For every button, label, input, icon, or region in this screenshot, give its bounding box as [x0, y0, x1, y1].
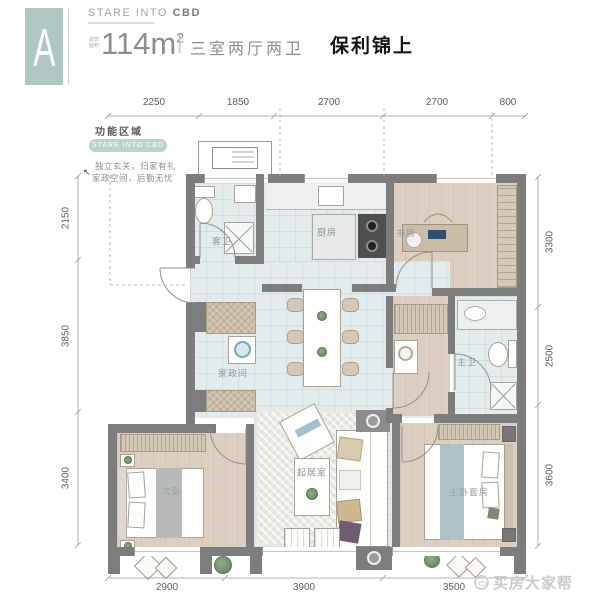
project-name: 保利锦上 [330, 31, 414, 58]
masterbath-shower [490, 382, 517, 410]
master-pillow-accent [487, 507, 499, 519]
dim-right-3: 3600 [545, 464, 556, 486]
wall-bedroom2-top [108, 424, 216, 433]
master-headboard [504, 444, 513, 540]
brand-slogan-bold: CBD [173, 7, 201, 19]
label-master-bath: 主卫 [457, 356, 477, 369]
wall-foyer-stub-1 [186, 302, 206, 332]
ac-unit-icon [212, 147, 258, 169]
dining-plant-1 [317, 311, 327, 321]
window-master-bedroom [392, 547, 502, 556]
sofa-back-line [370, 431, 371, 547]
kitchen-sink [318, 186, 344, 206]
window-bedroom2 [134, 547, 202, 556]
bedroom2-pillow-2 [127, 502, 145, 529]
wall-masterbath-left-2 [448, 392, 455, 416]
wall-foyer-stub-2 [186, 390, 206, 412]
watermark-logo-icon [474, 575, 489, 590]
dressing-wardrobe [394, 304, 448, 334]
dim-top-1: 2250 [143, 97, 165, 108]
wall-stub-b1 [200, 556, 212, 574]
bedroom2-wardrobe [120, 434, 206, 452]
dressing-mirror [398, 346, 413, 361]
info-panel-line2: 家政空间，后勤无忧 [92, 172, 173, 184]
sofa-pillow-purple [336, 520, 361, 544]
wall-guestbath-bottom-1 [186, 256, 200, 264]
watermark-text: 买房大家帮 [493, 572, 573, 593]
dining-chair-4 [342, 298, 359, 312]
guest-toilet-tank [193, 186, 215, 198]
header-divider [68, 8, 69, 84]
washing-machine-drum [234, 341, 251, 358]
guest-toilet-bowl [195, 198, 213, 224]
area-number: 114m [101, 26, 176, 61]
unit-type-badge: A [25, 8, 63, 85]
window-top-study [436, 174, 498, 183]
dining-table [303, 289, 341, 387]
study-bookshelf [497, 185, 517, 288]
wall-master-top-2 [434, 414, 526, 423]
master-wardrobe [438, 424, 500, 440]
wall-kitchen-bottom-2 [352, 284, 396, 292]
wall-bottom-4 [500, 547, 526, 556]
bedroom2-bed-runner [156, 468, 182, 538]
wall-left-bedroom [108, 424, 117, 556]
decor-plant-left [214, 556, 232, 574]
label-study: 书房 [396, 227, 416, 240]
area-value: 114m2 [101, 26, 184, 62]
bedroom2-pillow-1 [127, 471, 146, 498]
stove-burner-2 [366, 240, 378, 252]
dim-top-4: 2700 [426, 97, 448, 108]
dim-top-3: 2700 [318, 97, 340, 108]
side-table-upper-tray [366, 414, 380, 428]
layout-description: 三室两厅两卫 [190, 35, 304, 59]
wall-kitchen-bottom-1 [262, 284, 302, 292]
master-nightstand-1 [502, 426, 516, 442]
label-living: 起居室 [297, 466, 327, 479]
dim-left-3: 3400 [61, 467, 72, 489]
info-panel-title: 功能区域 [95, 123, 143, 138]
brand-subline [88, 22, 154, 24]
wall-masterbath-left-1 [448, 296, 455, 354]
label-second-bedroom: 次卧 [162, 485, 182, 498]
dim-bottom-2: 3900 [293, 582, 315, 593]
label-master-bedroom: 主卧套房 [449, 486, 489, 499]
sofa-pillow-white [339, 470, 361, 490]
masterbath-basin [464, 306, 486, 321]
master-pillow-1 [481, 451, 500, 478]
wall-left-upper [186, 174, 195, 268]
unit-type-letter: A [33, 15, 55, 77]
foyer-cabinet-upper [206, 302, 256, 334]
wall-bed2-living [246, 424, 254, 547]
info-panel-line1: 独立玄关，归家有礼 [95, 160, 176, 172]
coffee-table-plant [306, 488, 318, 500]
wall-master-entry-upper [386, 296, 393, 368]
label-utility: 家政间 [218, 367, 248, 380]
dim-top-2: 1850 [227, 97, 249, 108]
wall-guestbath-right [256, 174, 264, 258]
study-monitor [428, 230, 446, 239]
dining-chair-1 [287, 298, 304, 312]
area-prefix: 建筑面积 [89, 37, 100, 49]
window-top-kitchen [304, 174, 350, 183]
dining-plant-2 [317, 347, 327, 357]
stove-burner-1 [366, 220, 378, 232]
cursor-arrow-icon: ↖ [83, 167, 91, 178]
master-nightstand-2 [502, 528, 516, 542]
dim-bottom-1: 2900 [156, 582, 178, 593]
wall-study-bottom [432, 288, 526, 296]
dining-chair-3 [287, 362, 304, 376]
guest-sink [234, 185, 256, 203]
wall-bottom-2 [200, 547, 262, 556]
wall-stub-bl [108, 556, 120, 574]
decor-bowl-on-stub [367, 551, 381, 565]
label-kitchen: 厨房 [317, 226, 337, 239]
dining-chair-5 [342, 330, 359, 344]
wall-guestbath-bottom-2 [235, 256, 264, 264]
wall-stub-b2 [250, 556, 262, 574]
decor-diamond-1b [155, 557, 178, 580]
dining-chair-2 [287, 330, 304, 344]
masterbath-toilet-tank [508, 340, 517, 368]
window-living [262, 547, 358, 556]
wall-top-2 [268, 174, 304, 183]
header-separator: | [177, 32, 182, 55]
label-guest-bath: 客卫 [212, 235, 232, 248]
wall-living-master [392, 423, 400, 547]
dim-right-1: 3300 [545, 231, 556, 253]
info-panel-pill: STARE INTO CBD [89, 139, 167, 152]
dim-left-1: 2150 [61, 207, 72, 229]
bedroom2-plant-1 [124, 456, 132, 464]
brand-slogan: STARE INTO CBD [88, 7, 201, 19]
dim-top-5: 800 [500, 97, 517, 108]
bedroom2-headboard [118, 468, 127, 538]
dining-chair-6 [342, 362, 359, 376]
sofa-pillow-tan [337, 436, 364, 461]
watermark: 买房大家帮 [474, 572, 573, 593]
masterbath-toilet-bowl [488, 342, 508, 367]
foyer-cabinet-lower [206, 390, 256, 412]
wall-master-top-1 [386, 414, 402, 423]
wall-bottom-1 [108, 547, 134, 556]
wall-kitchen-study [386, 174, 394, 292]
dim-left-2: 3850 [61, 325, 72, 347]
brand-slogan-light: STARE INTO [88, 7, 168, 19]
dim-right-2: 2500 [545, 345, 556, 367]
dim-bottom-3: 3500 [443, 582, 465, 593]
floorplan-poster: A STARE INTO CBD 建筑面积 114m2 | 三室两厅两卫 保利锦… [0, 0, 600, 608]
wall-right [517, 174, 526, 556]
